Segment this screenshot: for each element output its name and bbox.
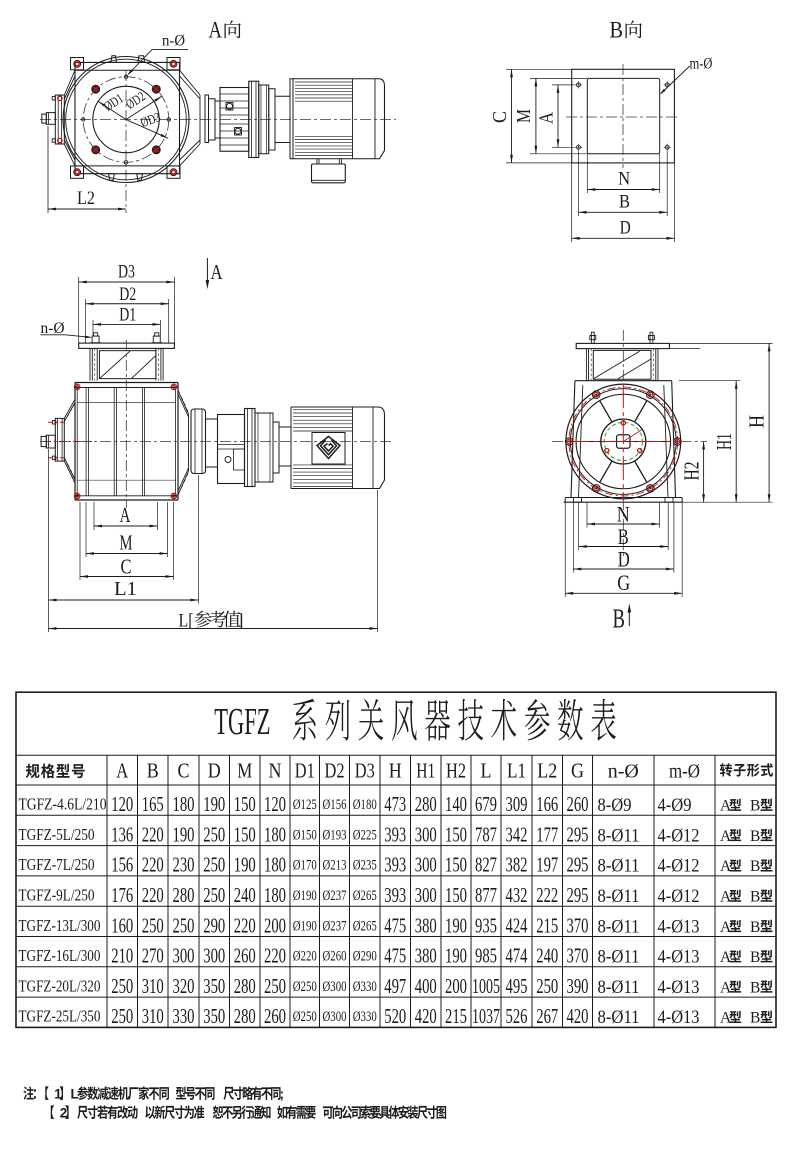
svg-text:370: 370 [567, 944, 589, 968]
svg-text:Ø290: Ø290 [353, 949, 377, 965]
svg-text:]: ] [237, 610, 243, 631]
svg-text:Ø237: Ø237 [323, 918, 347, 934]
svg-text:Ø330: Ø330 [353, 979, 377, 995]
svg-text:250: 250 [173, 913, 195, 937]
svg-text:250: 250 [111, 974, 133, 998]
svg-text:Ø150: Ø150 [293, 827, 317, 843]
svg-text:370: 370 [567, 913, 589, 937]
svg-text:L2: L2 [77, 188, 95, 209]
svg-text:A: A [209, 18, 223, 43]
svg-text:350: 350 [203, 974, 225, 998]
svg-text:L1: L1 [507, 759, 526, 783]
svg-text:166: 166 [536, 792, 558, 816]
svg-text:Ø265: Ø265 [353, 888, 377, 904]
svg-text:150: 150 [234, 822, 256, 846]
svg-text:220: 220 [142, 822, 164, 846]
svg-text:Ø330: Ø330 [353, 1009, 377, 1025]
svg-text:B: B [750, 798, 760, 815]
svg-text:985: 985 [475, 944, 497, 968]
svg-text:1037: 1037 [472, 1004, 500, 1028]
svg-text:220: 220 [142, 853, 164, 877]
svg-text:474: 474 [506, 944, 528, 968]
svg-text:H2: H2 [446, 759, 466, 783]
svg-text:Ø250: Ø250 [293, 979, 317, 995]
svg-text:4-Ø13: 4-Ø13 [658, 977, 700, 998]
svg-text:M: M [513, 109, 535, 123]
svg-text:382: 382 [506, 853, 528, 877]
svg-text:Ø193: Ø193 [323, 827, 347, 843]
svg-text:330: 330 [173, 1004, 195, 1028]
svg-text:H1: H1 [416, 759, 435, 783]
svg-text:H1: H1 [712, 433, 736, 450]
svg-text:310: 310 [142, 974, 164, 998]
svg-text:TGFZ-4.6L/210: TGFZ-4.6L/210 [19, 795, 107, 814]
svg-text:827: 827 [475, 853, 497, 877]
svg-text:180: 180 [264, 853, 286, 877]
svg-text:420: 420 [567, 1004, 589, 1028]
svg-text:350: 350 [203, 1004, 225, 1028]
svg-text:Ø225: Ø225 [353, 827, 377, 843]
svg-text:270: 270 [142, 944, 164, 968]
svg-text:150: 150 [445, 853, 467, 877]
svg-text:L1: L1 [114, 578, 137, 600]
svg-text:320: 320 [173, 974, 195, 998]
svg-text:300: 300 [173, 944, 195, 968]
svg-text:8-Ø11: 8-Ø11 [598, 977, 640, 998]
svg-text:200: 200 [264, 913, 286, 937]
svg-text:D3: D3 [118, 262, 135, 283]
svg-text:342: 342 [506, 822, 528, 846]
svg-text:475: 475 [384, 944, 406, 968]
svg-text:D: D [618, 546, 630, 571]
svg-text:C: C [121, 554, 132, 578]
svg-text:520: 520 [384, 1004, 406, 1028]
svg-text:B: B [750, 919, 760, 936]
svg-text:424: 424 [506, 913, 528, 937]
svg-text:240: 240 [234, 883, 256, 907]
svg-text:310: 310 [142, 1004, 164, 1028]
svg-text:230: 230 [173, 853, 195, 877]
svg-text:150: 150 [445, 883, 467, 907]
svg-text:526: 526 [506, 1004, 528, 1028]
svg-text:D2: D2 [325, 759, 345, 783]
svg-text:390: 390 [567, 974, 589, 998]
svg-text:250: 250 [142, 913, 164, 937]
svg-text:D: D [620, 217, 631, 238]
svg-text:4-Ø12: 4-Ø12 [658, 856, 700, 877]
svg-text:D2: D2 [119, 284, 136, 305]
svg-text:250: 250 [203, 822, 225, 846]
svg-text:Ø260: Ø260 [323, 949, 347, 965]
svg-text:380: 380 [415, 913, 437, 937]
svg-text:TGFZ-9L/250: TGFZ-9L/250 [19, 886, 95, 905]
svg-text:H: H [745, 415, 769, 428]
svg-text:Ø237: Ø237 [323, 888, 347, 904]
svg-text:250: 250 [536, 974, 558, 998]
svg-text:D1: D1 [119, 304, 136, 325]
svg-text:197: 197 [536, 853, 558, 877]
svg-text:222: 222 [536, 883, 558, 907]
svg-text:8-Ø11: 8-Ø11 [598, 916, 640, 937]
svg-text:267: 267 [536, 1004, 558, 1028]
svg-text:190: 190 [445, 913, 467, 937]
svg-text:TGFZ-20L/320: TGFZ-20L/320 [19, 976, 101, 995]
svg-text:190: 190 [173, 822, 195, 846]
svg-text:Ø180: Ø180 [353, 797, 377, 813]
svg-text:280: 280 [234, 1004, 256, 1028]
svg-text:165: 165 [142, 792, 164, 816]
svg-text:n-Ø: n-Ø [608, 761, 639, 783]
svg-text:877: 877 [475, 883, 497, 907]
svg-text:4-Ø12: 4-Ø12 [658, 886, 700, 907]
svg-text:260: 260 [264, 1004, 286, 1028]
svg-text:B: B [750, 828, 760, 845]
svg-text:220: 220 [264, 944, 286, 968]
svg-text:A: A [211, 260, 224, 284]
svg-text:140: 140 [445, 792, 467, 816]
svg-text:190: 190 [203, 792, 225, 816]
svg-text:B: B [618, 524, 629, 549]
svg-text:L[: L[ [179, 610, 194, 631]
svg-text:8-Ø11: 8-Ø11 [598, 825, 640, 846]
svg-text:Ø235: Ø235 [353, 858, 377, 874]
svg-text:m-Ø: m-Ø [669, 761, 700, 783]
svg-text:4-Ø13: 4-Ø13 [658, 1007, 700, 1028]
svg-text:;: ; [280, 1087, 285, 1102]
svg-text:TGFZ-25L/350: TGFZ-25L/350 [19, 1007, 101, 1026]
svg-text:B: B [613, 603, 626, 633]
svg-text:Ø190: Ø190 [293, 918, 317, 934]
svg-text:N: N [618, 169, 630, 190]
svg-text:TGFZ-7L/250: TGFZ-7L/250 [19, 855, 95, 874]
svg-text:Ø170: Ø170 [293, 858, 317, 874]
svg-text:309: 309 [506, 792, 528, 816]
svg-text:B: B [750, 1010, 760, 1027]
svg-text:220: 220 [142, 883, 164, 907]
svg-text:Ø300: Ø300 [323, 1009, 347, 1025]
svg-text:250: 250 [111, 1004, 133, 1028]
svg-text:432: 432 [506, 883, 528, 907]
svg-text:295: 295 [567, 853, 589, 877]
svg-text:N: N [269, 759, 282, 783]
svg-text:295: 295 [567, 822, 589, 846]
svg-text:TGFZ-5L/250: TGFZ-5L/250 [19, 825, 95, 844]
svg-text:D1: D1 [295, 759, 315, 783]
svg-text:220: 220 [234, 913, 256, 937]
svg-text:M: M [237, 759, 252, 783]
svg-text:Ø300: Ø300 [323, 979, 347, 995]
svg-text:TGFZ-13L/300: TGFZ-13L/300 [19, 916, 101, 935]
svg-text:n-Ø: n-Ø [162, 33, 185, 50]
svg-text:150: 150 [445, 822, 467, 846]
svg-text:TGFZ: TGFZ [214, 701, 270, 743]
svg-text:190: 190 [234, 853, 256, 877]
svg-text:300: 300 [415, 822, 437, 846]
svg-text:180: 180 [264, 822, 286, 846]
svg-text:176: 176 [111, 883, 133, 907]
svg-text:Ø250: Ø250 [293, 1009, 317, 1025]
svg-text:215: 215 [445, 1004, 467, 1028]
svg-text:B: B [750, 889, 760, 906]
svg-text:4-Ø12: 4-Ø12 [658, 825, 700, 846]
svg-text:497: 497 [384, 974, 406, 998]
svg-text:B: B [619, 191, 630, 212]
svg-text:H2: H2 [679, 462, 703, 481]
svg-text:120: 120 [111, 792, 133, 816]
svg-text:156: 156 [111, 853, 133, 877]
svg-text:200: 200 [445, 974, 467, 998]
svg-text:935: 935 [475, 913, 497, 937]
svg-text:260: 260 [234, 944, 256, 968]
svg-text:160: 160 [111, 913, 133, 937]
svg-text:m-Ø: m-Ø [690, 56, 713, 73]
svg-text:300: 300 [415, 853, 437, 877]
svg-text:8-Ø11: 8-Ø11 [598, 947, 640, 968]
svg-text:210: 210 [111, 944, 133, 968]
svg-text:D3: D3 [355, 759, 375, 783]
svg-text:G: G [617, 570, 630, 595]
svg-text:B: B [750, 858, 760, 875]
svg-text:B: B [750, 979, 760, 996]
svg-text:420: 420 [415, 1004, 437, 1028]
svg-text:Ø125: Ø125 [293, 797, 317, 813]
svg-text:Ø265: Ø265 [353, 918, 377, 934]
svg-text:N: N [617, 502, 630, 527]
svg-text:TGFZ-16L/300: TGFZ-16L/300 [19, 946, 101, 965]
svg-text:787: 787 [475, 822, 497, 846]
svg-text:250: 250 [203, 853, 225, 877]
svg-text:H: H [389, 759, 402, 783]
svg-text:679: 679 [475, 792, 497, 816]
svg-text:290: 290 [203, 913, 225, 937]
svg-text:473: 473 [384, 792, 406, 816]
svg-text:C: C [178, 759, 190, 783]
svg-text:180: 180 [173, 792, 195, 816]
svg-text:180: 180 [264, 883, 286, 907]
svg-text:177: 177 [536, 822, 558, 846]
svg-text:250: 250 [203, 883, 225, 907]
svg-text:4-Ø9: 4-Ø9 [658, 795, 692, 816]
svg-text:400: 400 [415, 974, 437, 998]
svg-text:L: L [71, 1087, 79, 1102]
svg-text:300: 300 [415, 883, 437, 907]
svg-text:8-Ø11: 8-Ø11 [598, 856, 640, 877]
svg-text:280: 280 [173, 883, 195, 907]
svg-text:295: 295 [567, 883, 589, 907]
svg-text:120: 120 [264, 792, 286, 816]
svg-text:Ø220: Ø220 [293, 949, 317, 965]
svg-text:M: M [120, 530, 133, 554]
svg-text:136: 136 [111, 822, 133, 846]
svg-text:393: 393 [384, 883, 406, 907]
svg-text:A: A [116, 759, 128, 783]
svg-text:380: 380 [415, 944, 437, 968]
svg-text:260: 260 [567, 792, 589, 816]
svg-text:A: A [536, 112, 558, 124]
svg-text:1005: 1005 [472, 974, 500, 998]
svg-text:4-Ø13: 4-Ø13 [658, 947, 700, 968]
svg-text:C: C [489, 111, 511, 123]
svg-text:Ø213: Ø213 [323, 858, 347, 874]
svg-text:190: 190 [445, 944, 467, 968]
svg-text:250: 250 [264, 974, 286, 998]
svg-text:L2: L2 [537, 759, 557, 783]
svg-text:L: L [481, 759, 492, 783]
svg-text:393: 393 [384, 822, 406, 846]
svg-text:Ø190: Ø190 [293, 888, 317, 904]
svg-text:D: D [208, 759, 221, 783]
svg-text:B: B [147, 759, 159, 783]
svg-text:4-Ø13: 4-Ø13 [658, 916, 700, 937]
svg-text:495: 495 [506, 974, 528, 998]
svg-text:8-Ø11: 8-Ø11 [598, 1007, 640, 1028]
svg-text:280: 280 [234, 974, 256, 998]
svg-text:215: 215 [536, 913, 558, 937]
svg-text:8-Ø9: 8-Ø9 [598, 795, 632, 816]
svg-text:A: A [120, 503, 132, 527]
svg-text:G: G [571, 759, 584, 783]
svg-text:B: B [750, 949, 760, 966]
svg-text:280: 280 [415, 792, 437, 816]
svg-text:Ø156: Ø156 [323, 797, 347, 813]
svg-text:475: 475 [384, 913, 406, 937]
svg-text:B: B [610, 18, 624, 43]
svg-text:300: 300 [203, 944, 225, 968]
svg-text:393: 393 [384, 853, 406, 877]
svg-text:8-Ø11: 8-Ø11 [598, 886, 640, 907]
svg-text:150: 150 [234, 792, 256, 816]
svg-text:240: 240 [536, 944, 558, 968]
